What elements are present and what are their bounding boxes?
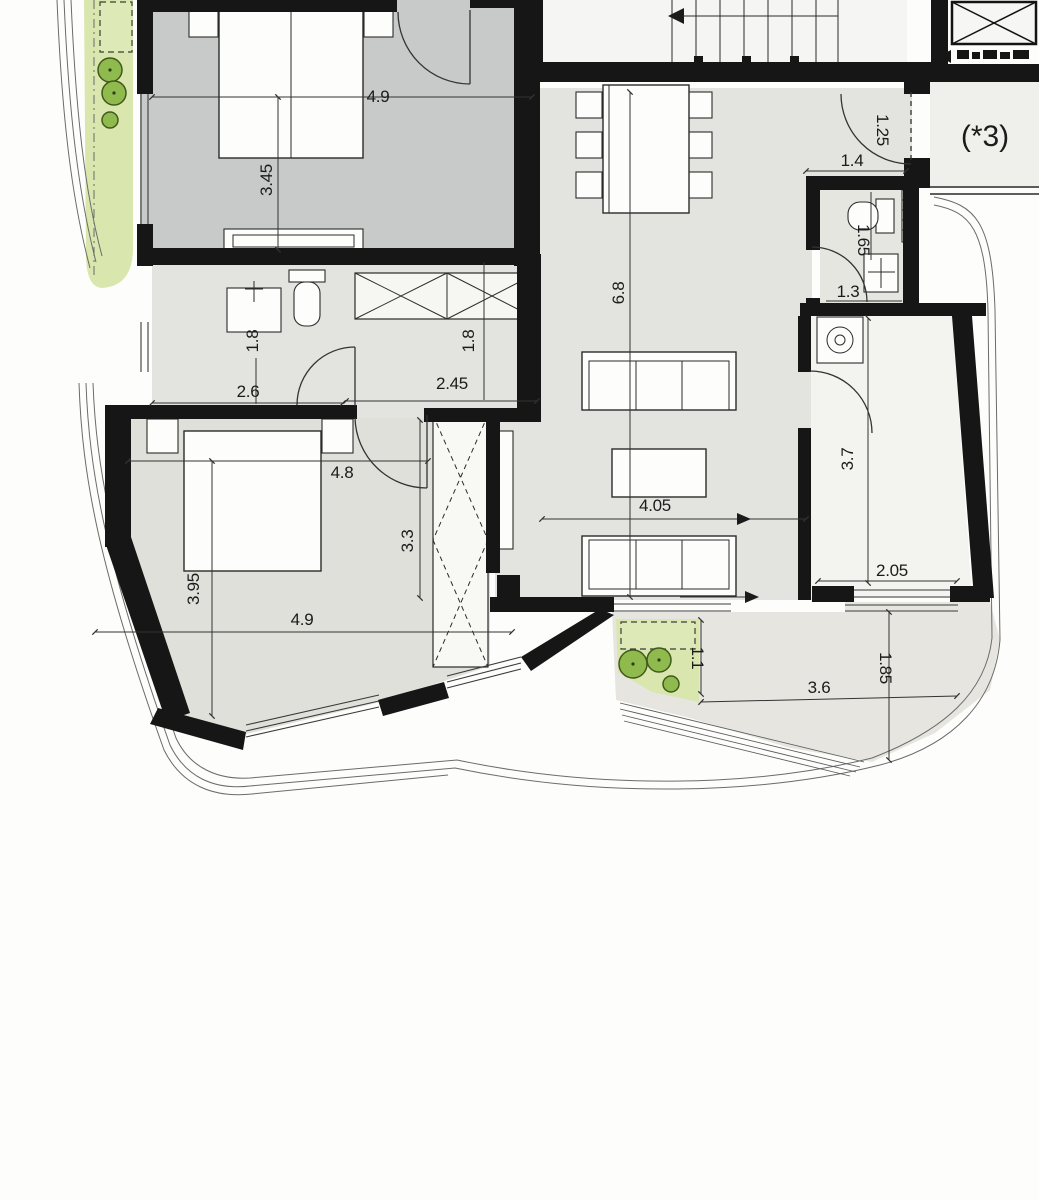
dim-bath-width: 2.6: [237, 382, 260, 401]
sofa: [582, 536, 736, 596]
wall: [424, 408, 541, 422]
chair: [576, 92, 602, 118]
furniture-dining: [576, 85, 712, 213]
dim-bedroom2-right: 3.3: [398, 530, 417, 553]
dim-bedroom2-left: 3.95: [184, 573, 203, 605]
dim-bedroom2-top: 4.8: [331, 463, 354, 482]
dim-wc-depth: 1.65: [854, 224, 873, 256]
dim-terrace-width: 3.6: [808, 678, 831, 697]
bed-double: [184, 431, 321, 571]
bush-center-dot: [657, 658, 660, 661]
dim-entry-door: 1.25: [873, 114, 892, 146]
dim-bath-niche: 1.8: [243, 330, 262, 353]
scale-mark: [1013, 50, 1029, 59]
dim-terrace-depth: 1.85: [876, 652, 895, 684]
dim-utility-depth: 3.7: [838, 448, 857, 471]
dim-bedroom1-depth: 3.45: [257, 164, 276, 196]
dim-entry-hall: 1.4: [841, 151, 864, 170]
chair: [686, 132, 712, 158]
wardrobe: [433, 415, 488, 667]
bush-center-dot: [631, 662, 634, 665]
wall: [137, 0, 153, 94]
scale-mark: [1000, 52, 1010, 59]
bush-center-dot: [112, 91, 115, 94]
dim-bedroom1-width: 4.9: [367, 87, 390, 106]
wall: [950, 586, 990, 602]
unit-note: (*3): [961, 120, 1009, 153]
wall: [521, 609, 614, 671]
chair: [576, 132, 602, 158]
stair-landing-floor: [543, 0, 907, 62]
wall: [931, 64, 1039, 82]
tv-board: [499, 431, 513, 549]
dim-utility-width: 2.05: [876, 561, 908, 580]
dim-planter-depth: 1.1: [688, 647, 707, 670]
wall: [806, 190, 820, 250]
scale-mark: [983, 50, 997, 59]
wall: [486, 415, 500, 573]
wall: [105, 405, 357, 419]
floor-plan-svg: 4.9 3.45 6.8 1.25 1.4 1.65 1.3 1.8 2.6 2…: [0, 0, 1039, 1200]
coffee-table: [612, 449, 706, 497]
toilet-tank: [876, 199, 894, 233]
wall: [497, 575, 520, 597]
dim-bedroom2-bottom: 4.9: [291, 610, 314, 629]
wall: [800, 303, 986, 316]
chair: [576, 172, 602, 198]
dim-wc-width: 1.3: [837, 282, 860, 301]
wall: [806, 176, 912, 190]
wall: [137, 248, 516, 265]
elevator: [939, 2, 1036, 63]
stair-nosing-mark: [790, 56, 799, 62]
wall: [137, 0, 397, 12]
wall: [798, 316, 811, 372]
wall: [529, 0, 543, 64]
dim-hall-width: 1.8: [459, 330, 478, 353]
nightstand: [189, 9, 218, 37]
scale-mark: [957, 50, 969, 59]
scale-mark: [972, 52, 980, 59]
dim-living-length: 6.8: [609, 282, 628, 305]
dining-table: [603, 85, 689, 213]
closet-hall: [355, 273, 537, 319]
dim-hall-length: 2.45: [436, 374, 468, 393]
wall: [931, 0, 948, 66]
dim-living-width: 4.05: [639, 496, 671, 515]
nightstand: [322, 419, 353, 453]
closet: [355, 273, 537, 319]
toilet-bowl: [294, 282, 320, 326]
chair: [686, 172, 712, 198]
bush-icon: [663, 676, 679, 692]
nightstand: [147, 419, 178, 453]
laundry: [817, 317, 863, 363]
wall: [812, 586, 854, 602]
planter-terrace-box: [621, 622, 695, 649]
wall: [904, 82, 930, 94]
planter-left-box: [100, 2, 132, 52]
nightstand: [364, 9, 393, 37]
chair: [686, 92, 712, 118]
wall: [490, 597, 614, 612]
floor-plan-page: 4.9 3.45 6.8 1.25 1.4 1.65 1.3 1.8 2.6 2…: [0, 0, 1039, 1200]
stair-nosing-mark: [742, 56, 751, 62]
wall: [105, 405, 131, 547]
bush-icon: [102, 112, 118, 128]
wall: [903, 188, 919, 316]
toilet-tank: [289, 270, 325, 282]
bush-center-dot: [108, 68, 111, 71]
wall: [529, 62, 939, 82]
stair-nosing-mark: [694, 56, 703, 62]
wall: [798, 428, 811, 600]
washing-machine: [817, 317, 863, 363]
wall: [517, 254, 541, 418]
